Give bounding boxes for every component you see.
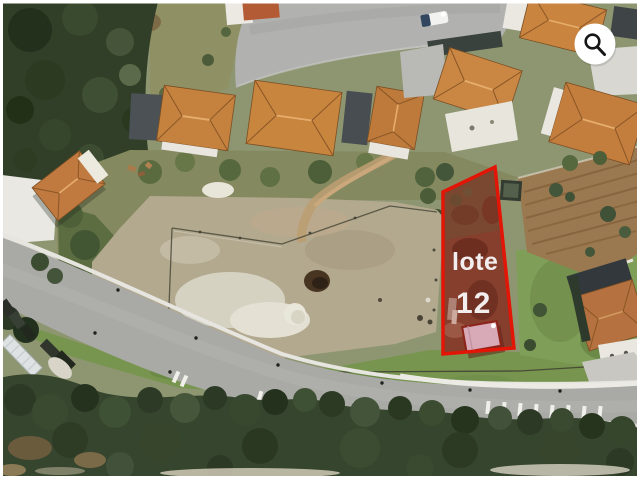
plot-label-line1: lote [452, 248, 498, 276]
listing-photo[interactable]: lote 12 [0, 0, 640, 480]
house-1 [155, 85, 235, 158]
zoom-button-bg [575, 24, 616, 65]
aerial-photo: lote 12 [0, 0, 640, 480]
water-tank [501, 181, 520, 199]
house-2 [246, 80, 342, 156]
plot-label-line2: 12 [456, 287, 491, 320]
